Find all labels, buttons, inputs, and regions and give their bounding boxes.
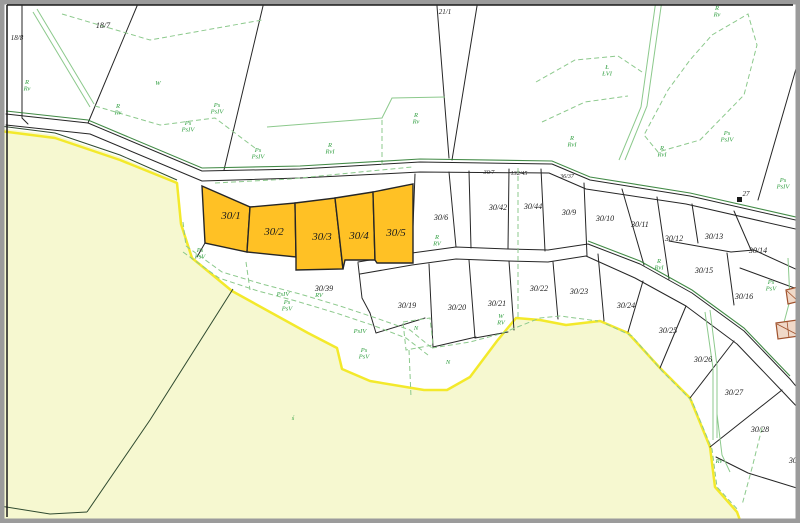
landuse-label: PsPsIV (210, 102, 225, 116)
landuse-label: N (445, 359, 451, 366)
parcel-label-30/21: 30/21 (487, 299, 506, 308)
parcel-label-30/25: 30/25 (658, 326, 677, 335)
landuse-label: PsPsIV (251, 147, 266, 161)
landuse-label: PsIV (353, 328, 368, 335)
parcel-label-30/10: 30/10 (595, 214, 614, 223)
parcel-label-21/1: 21/1 (439, 8, 451, 16)
parcel-label-30/7: 30/7 (483, 170, 496, 176)
parcel-label-30/16: 30/16 (734, 292, 753, 301)
landuse-label: RV (314, 292, 324, 299)
parcel-label-30/4: 30/4 (348, 230, 369, 242)
parcel-label-30/1: 30/1 (220, 210, 241, 222)
landuse-label: RRvI (656, 145, 667, 159)
landuse-label: RRv (412, 112, 420, 126)
landuse-label: PsPsV (194, 247, 207, 261)
parcel-label-30/44: 30/44 (523, 202, 542, 211)
highlighted-parcels (202, 184, 413, 270)
landuse-label: PsPsV (358, 347, 371, 361)
parcel-label-30/14: 30/14 (748, 246, 767, 255)
landuse-label: RRv (114, 103, 122, 117)
landuse-label: RRv (23, 79, 31, 93)
small-building-square (737, 197, 742, 202)
parcel-label-30/6: 30/6 (433, 213, 448, 222)
parcel-label-30/42: 30/42 (488, 203, 507, 212)
landuse-label: ŁŁVI (601, 64, 613, 78)
landuse-label: PsIV (276, 291, 291, 298)
landuse-label: PsPsV (281, 299, 294, 313)
cadastral-map-frame: 18/818/721/12730/130/230/330/430/530/630… (0, 0, 800, 523)
parcel-label-30/15: 30/15 (694, 266, 713, 275)
parcel-label-30/3: 30/3 (311, 231, 332, 243)
parcel-label-30/24: 30/24 (616, 301, 635, 310)
landuse-label: N (413, 325, 419, 332)
parcel-label-18/8: 18/8 (11, 34, 24, 42)
landuse-label: RRvI (653, 258, 664, 272)
parcel-label-30/22: 30/22 (529, 284, 548, 293)
parcel-label-30/19: 30/19 (397, 301, 416, 310)
parcel-label-30/11: 30/11 (630, 220, 649, 229)
parcel-label-30/26: 30/26 (693, 355, 712, 364)
parcel-label-30/12: 30/12 (664, 234, 683, 243)
parcel-label-30/2: 30/2 (263, 226, 284, 238)
landuse-label: RRvI (324, 142, 335, 156)
parcel-label-30/23: 30/23 (569, 287, 588, 296)
parcel-label-30/27: 30/27 (724, 388, 744, 397)
landuse-label: PsPsIV (720, 130, 735, 144)
cadastral-map: 18/818/721/12730/130/230/330/430/530/630… (0, 0, 800, 523)
parcel-label-30/9: 30/9 (561, 208, 576, 217)
parcel-label-132/45: 132/45 (511, 170, 528, 177)
parcel-label-30/13: 30/13 (704, 232, 723, 241)
landuse-label: W (155, 80, 161, 87)
parcel-label-30/20: 30/20 (447, 303, 466, 312)
landuse-label: RRv (713, 5, 721, 19)
parcel-label-18/7: 18/7 (96, 21, 111, 30)
landuse-label: RRvI (566, 135, 577, 149)
building-symbols (737, 197, 800, 339)
landuse-label: PsPsIV (776, 177, 791, 191)
highlighted-parcel-30-5[interactable] (373, 184, 413, 263)
parcel-label-36/37: 36/37 (559, 174, 575, 180)
landuse-label: WRV (496, 313, 506, 327)
parcel-label-30/5: 30/5 (385, 227, 406, 239)
landuse-label: RRV (432, 234, 442, 248)
parcel-label-27: 27 (743, 190, 751, 198)
parcel-label-30/28: 30/28 (750, 425, 769, 434)
landuse-label: Rv (715, 458, 723, 465)
